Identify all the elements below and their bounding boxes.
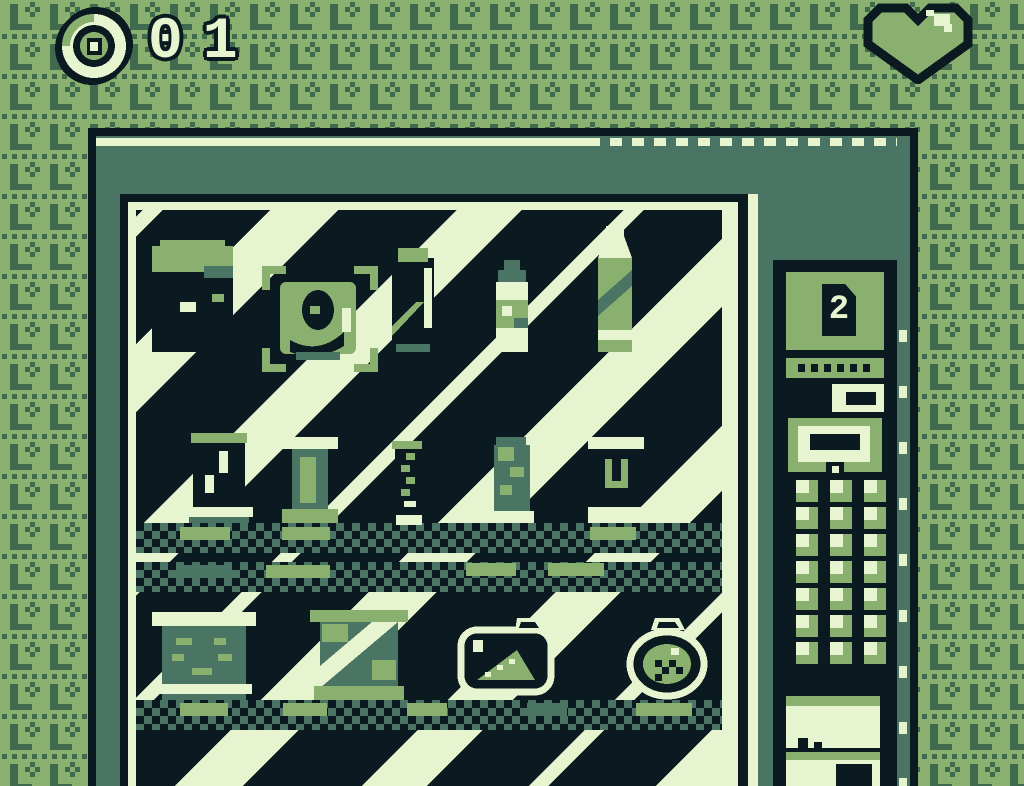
price-tag: [266, 565, 330, 578]
price-tag: [180, 703, 228, 716]
keypad: [796, 480, 886, 664]
price-note-icon: 2: [822, 284, 856, 336]
panel-divider-strip: [748, 194, 758, 786]
item-canister[interactable]: [388, 248, 438, 352]
machine-side-edge: [897, 136, 910, 786]
coin-icon: [52, 4, 136, 88]
item-wide-jar[interactable]: [152, 612, 256, 700]
cursor-corner: [354, 348, 378, 372]
keypad-button[interactable]: [830, 588, 852, 610]
price-tag: [466, 563, 516, 576]
item-mottled-jar[interactable]: [490, 437, 536, 523]
price-value: 2: [829, 291, 849, 329]
keypad-button[interactable]: [796, 507, 818, 529]
side-edge-highlight-dashes: [899, 286, 907, 786]
keypad-button[interactable]: [830, 480, 852, 502]
price-tag: [176, 565, 232, 578]
keypad-button[interactable]: [864, 588, 886, 610]
keypad-button[interactable]: [864, 534, 886, 556]
cursor-corner: [262, 348, 286, 372]
price-tag: [282, 527, 330, 540]
item-carton[interactable]: [150, 240, 235, 352]
change-door[interactable]: [786, 696, 880, 748]
keypad-button[interactable]: [796, 561, 818, 583]
price-tag: [407, 703, 447, 716]
keypad-button[interactable]: [796, 615, 818, 637]
keypad-button[interactable]: [864, 480, 886, 502]
keypad-button[interactable]: [864, 615, 886, 637]
item-spool[interactable]: [308, 610, 410, 700]
vending-glass: [136, 210, 722, 786]
keypad-button[interactable]: [864, 507, 886, 529]
keypad-button[interactable]: [830, 561, 852, 583]
item-striped-jar[interactable]: [183, 433, 259, 523]
price-display: 2: [786, 272, 884, 350]
item-bagged-wedge[interactable]: [455, 616, 557, 700]
item-column-jar[interactable]: [282, 437, 338, 523]
item-bagged-bun[interactable]: [625, 618, 709, 700]
item-zipper-jar[interactable]: [388, 441, 428, 525]
coin-counter: 01: [148, 10, 258, 76]
price-tag: [527, 703, 567, 716]
keypad-button[interactable]: [796, 588, 818, 610]
keypad-button[interactable]: [830, 642, 852, 664]
keypad-button[interactable]: [796, 480, 818, 502]
item-small-bottle[interactable]: [492, 260, 532, 352]
selection-cursor: [262, 266, 378, 372]
return-slot-opening: [836, 764, 872, 786]
grille-dots: [798, 364, 874, 372]
bill-acceptor-light: [832, 466, 839, 473]
keypad-button[interactable]: [796, 534, 818, 556]
bill-acceptor[interactable]: [788, 418, 882, 472]
keypad-button[interactable]: [796, 642, 818, 664]
door-notch: [814, 742, 822, 748]
speaker-grille: [786, 358, 884, 378]
cursor-corner: [354, 266, 378, 290]
keypad-button[interactable]: [830, 534, 852, 556]
coin-slot-opening: [846, 392, 876, 405]
coin-slot[interactable]: [832, 384, 884, 412]
keypad-button[interactable]: [830, 615, 852, 637]
game-screen: 01: [0, 0, 1024, 786]
heart-icon: [862, 0, 974, 84]
price-tag: [548, 563, 604, 576]
keypad-button[interactable]: [830, 507, 852, 529]
item-emblem-jar[interactable]: [588, 437, 644, 523]
price-tag: [590, 527, 636, 540]
change-return-slot[interactable]: [786, 752, 880, 786]
bill-slot-opening: [810, 434, 860, 450]
price-tag: [180, 527, 230, 540]
item-striped-bottle[interactable]: [592, 226, 638, 352]
door-notch: [798, 738, 808, 748]
cursor-corner: [262, 266, 286, 290]
machine-top-highlight-dashes: [600, 138, 910, 146]
price-tag: [636, 703, 692, 716]
keypad-button[interactable]: [864, 642, 886, 664]
keypad-button[interactable]: [864, 561, 886, 583]
price-tag: [283, 703, 327, 716]
